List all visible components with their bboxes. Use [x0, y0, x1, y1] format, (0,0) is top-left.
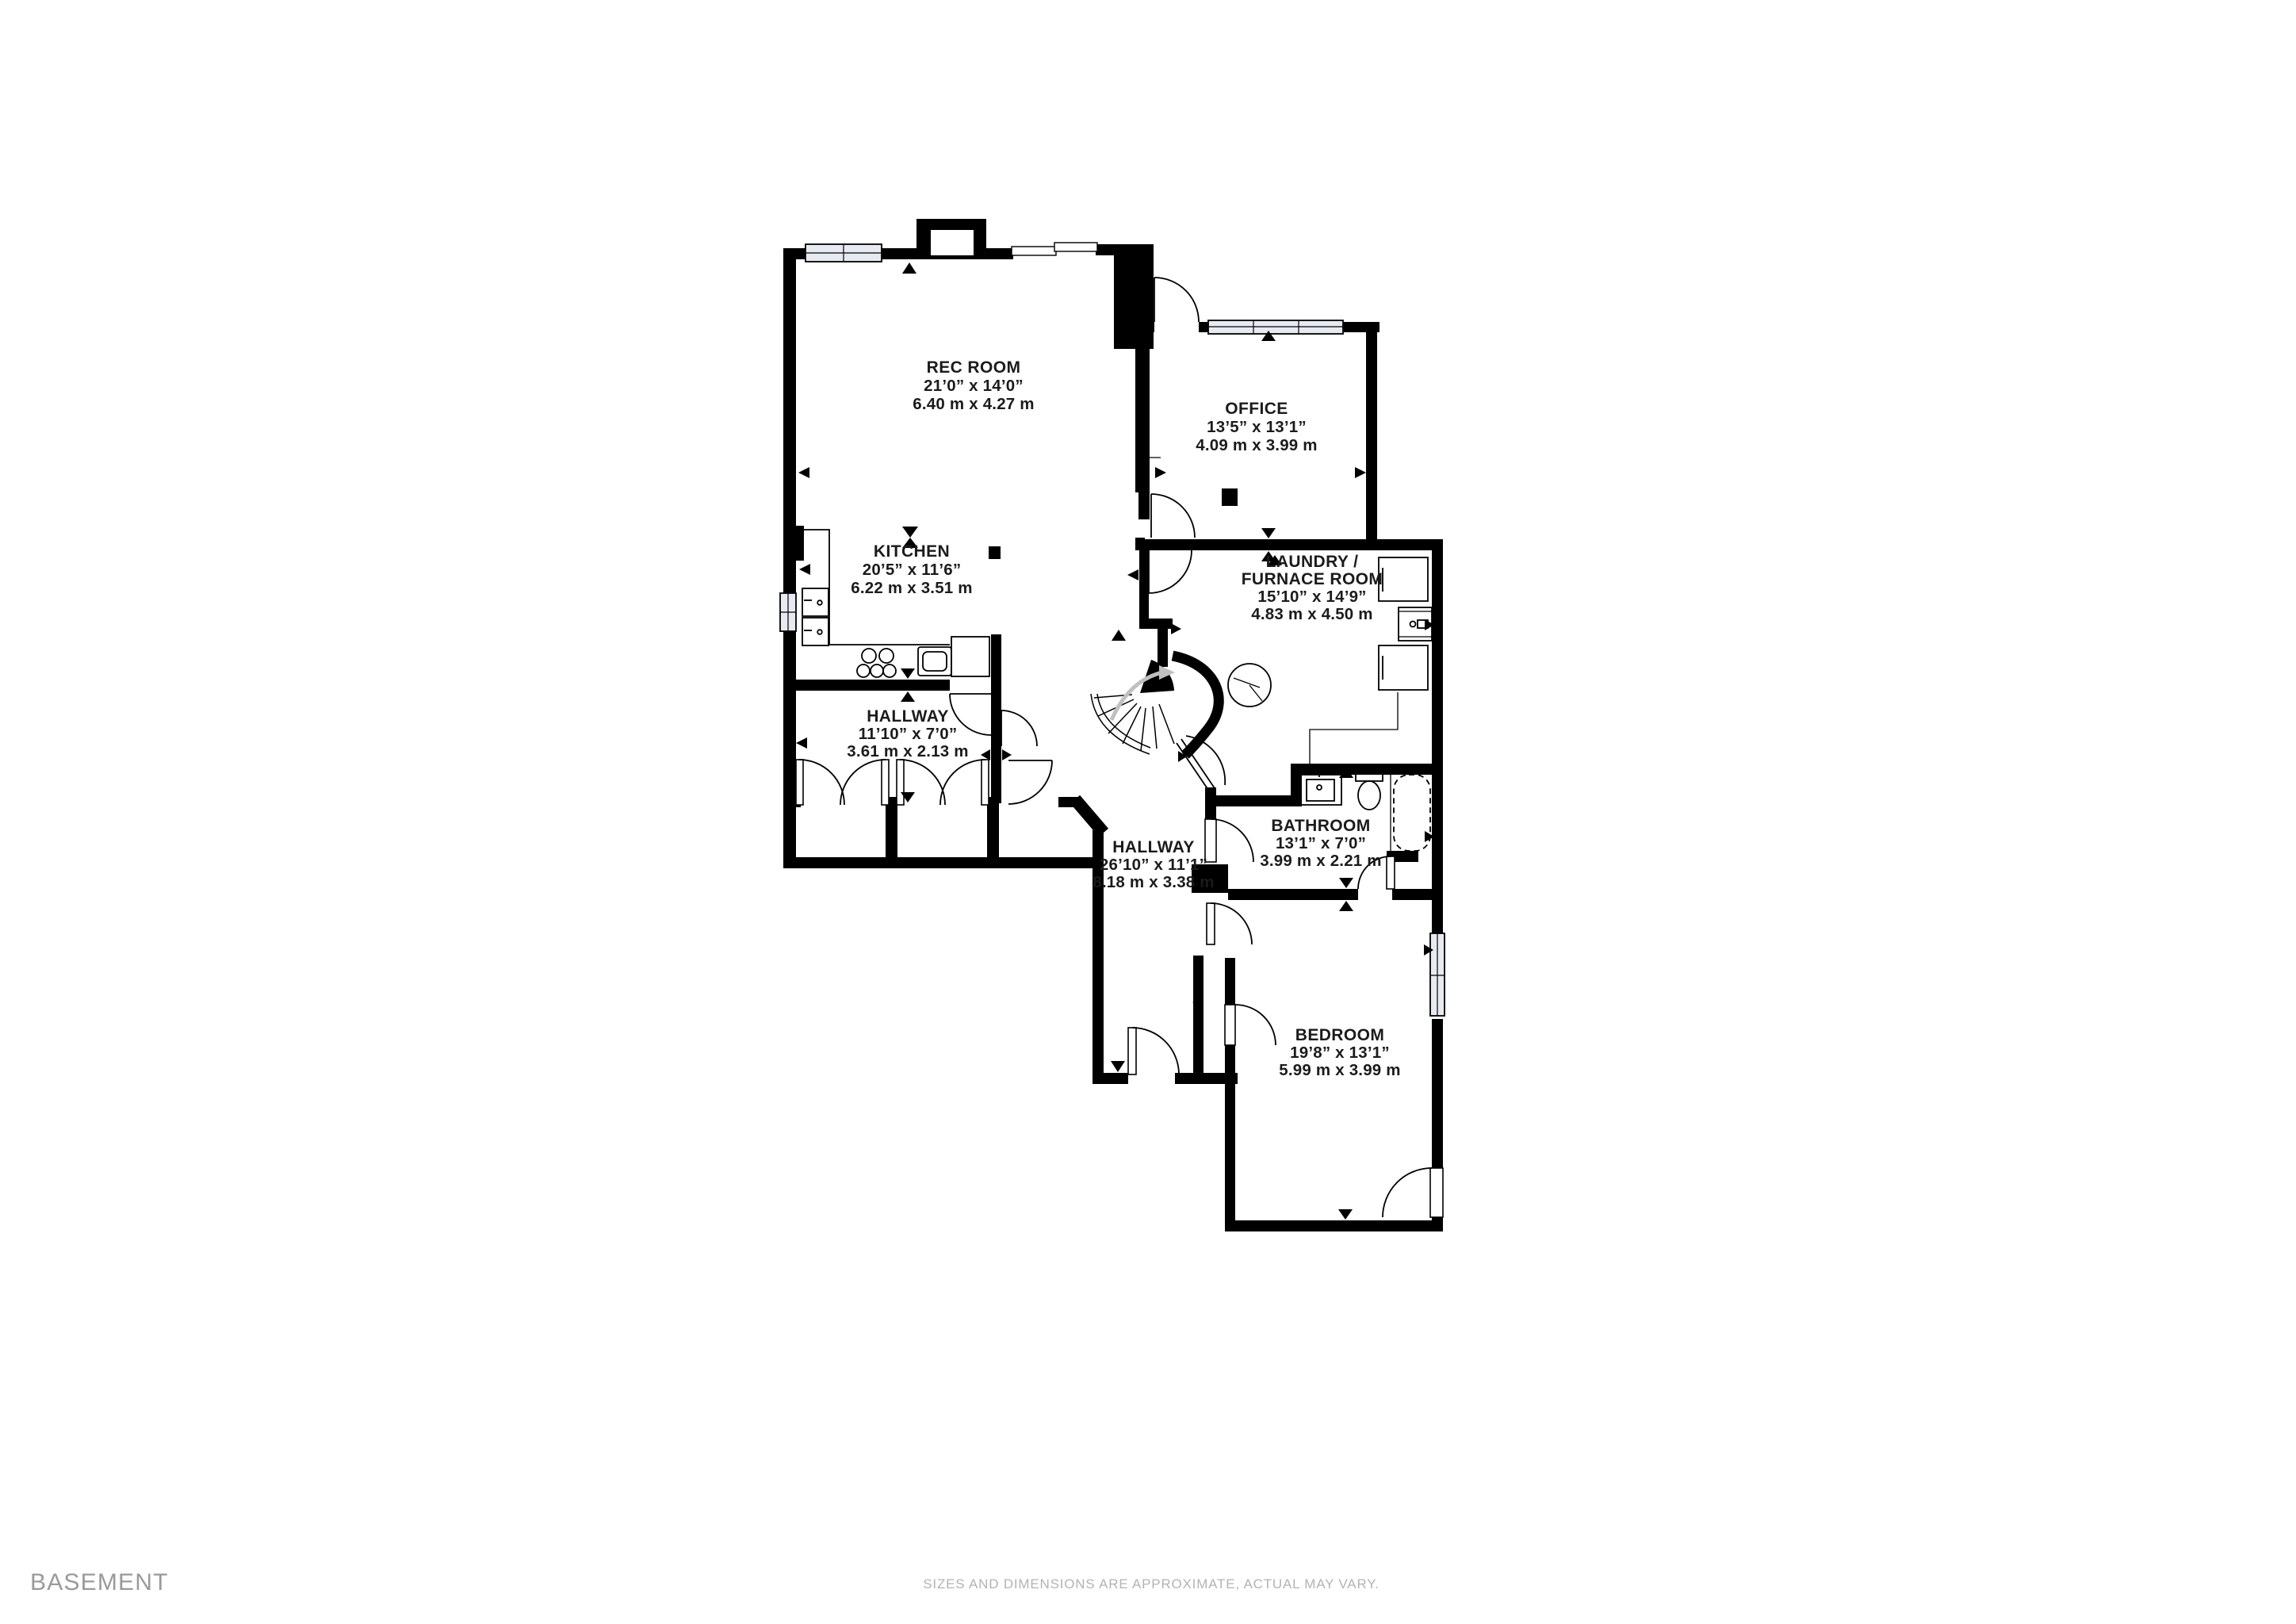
- disclaimer-text: SIZES AND DIMENSIONS ARE APPROXIMATE, AC…: [923, 1576, 1379, 1591]
- vestibule-door-icon: [1001, 710, 1037, 746]
- room-title: BATHROOM: [1271, 817, 1370, 835]
- room-title: KITCHEN: [874, 542, 950, 561]
- room-dim-metric: 4.09 m x 3.99 m: [1196, 436, 1317, 454]
- room-dim-metric: 6.22 m x 3.51 m: [851, 579, 972, 597]
- room-dim-metric: 6.40 m x 4.27 m: [913, 395, 1034, 413]
- room-title: BEDROOM: [1295, 1026, 1384, 1044]
- room-title: HALLWAY: [1112, 838, 1195, 856]
- dimension-arrow-icon: [1339, 901, 1353, 911]
- room-title: LAUNDRY /: [1266, 553, 1359, 571]
- dimension-arrow-icon: [798, 467, 809, 478]
- room-labels: REC ROOM 21’0” x 14’0” 6.40 m x 4.27 m O…: [847, 358, 1400, 1079]
- room-title: FURNACE ROOM: [1242, 570, 1383, 588]
- label-bathroom: BATHROOM 13’1” x 7’0” 3.99 m x 2.21 m: [1260, 817, 1381, 870]
- staircase: [1091, 656, 1219, 792]
- office-entry-door-icon: [1154, 278, 1199, 322]
- dimension-arrow-icon: [799, 564, 810, 575]
- floor-plan-page: REC ROOM 21’0” x 14’0” 6.40 m x 4.27 m O…: [0, 0, 2296, 1624]
- ceiling-light-icon: [1222, 488, 1238, 506]
- bedroom-left-door-icon: [1225, 1005, 1276, 1045]
- dimension-arrow-icon: [1171, 623, 1181, 634]
- dimension-arrow-icon: [1261, 528, 1276, 538]
- dimension-arrow-icon: [1112, 630, 1126, 641]
- rec-room-opening-icon: [1012, 243, 1097, 255]
- laundry-door-icon: [1149, 550, 1192, 593]
- room-title: HALLWAY: [867, 707, 949, 726]
- kitchen-island-counter: [951, 637, 989, 676]
- room-dim-metric: 3.99 m x 2.21 m: [1260, 852, 1381, 870]
- room-dim-metric: 3.61 m x 2.13 m: [847, 742, 968, 760]
- label-hallway-lower: HALLWAY 26’10” x 11’1” 8.18 m x 3.38 m: [1093, 838, 1214, 891]
- dimension-arrow-icon: [1127, 569, 1138, 580]
- dimension-arrow-icon: [1111, 1061, 1125, 1072]
- floor-title: BASEMENT: [30, 1569, 169, 1595]
- kitchen-stove-icon: [857, 649, 896, 677]
- room-title: OFFICE: [1225, 400, 1288, 418]
- office-side-door-icon: [1151, 494, 1195, 538]
- lower-hallway-door-icon: [1128, 1028, 1179, 1074]
- corridor-bedroom-door-icon: [1207, 903, 1252, 944]
- closet-single-door-icon: [1008, 760, 1052, 804]
- dimension-arrow-icon: [902, 262, 916, 274]
- label-bedroom: BEDROOM 19’8” x 13’1” 5.99 m x 3.99 m: [1279, 1026, 1400, 1079]
- room-dim-metric: 8.18 m x 3.38 m: [1093, 873, 1214, 891]
- label-kitchen: KITCHEN 20’5” x 11’6” 6.22 m x 3.51 m: [851, 542, 972, 597]
- furnace-icon: [1228, 664, 1271, 707]
- label-rec-room: REC ROOM 21’0” x 14’0” 6.40 m x 4.27 m: [913, 358, 1034, 413]
- dimension-arrow-icon: [901, 691, 915, 702]
- bathroom-hall-door-icon: [1205, 819, 1253, 862]
- kitchen-fridge-icon: [802, 588, 828, 645]
- room-dim-metric: 4.83 m x 4.50 m: [1251, 605, 1372, 623]
- label-hallway-upper: HALLWAY 11’10” x 7’0” 3.61 m x 2.13 m: [847, 707, 968, 760]
- kitchen-window-icon: [780, 593, 796, 631]
- dimension-arrow-icon: [981, 749, 990, 760]
- bathroom-sink-icon: [1300, 769, 1341, 805]
- room-dim-imperial: 26’10” x 11’1”: [1100, 856, 1207, 874]
- kitchen-sink-icon: [918, 647, 951, 676]
- dimension-arrow-icon: [1339, 878, 1353, 888]
- room-title: REC ROOM: [927, 358, 1021, 377]
- room-dim-metric: 5.99 m x 3.99 m: [1279, 1061, 1400, 1079]
- dimension-arrow-icon: [1355, 467, 1366, 478]
- bedroom-window-icon: [1430, 933, 1445, 1016]
- label-laundry: LAUNDRY / FURNACE ROOM 15’10” x 14’9” 4.…: [1242, 553, 1383, 623]
- furnace-platform: [1310, 692, 1398, 764]
- rec-room-window-icon: [806, 244, 882, 262]
- bedroom-exterior-door-icon: [1383, 1168, 1443, 1217]
- room-dim-imperial: 13’1” x 7’0”: [1276, 834, 1366, 852]
- floor-plan-drawing: REC ROOM 21’0” x 14’0” 6.40 m x 4.27 m O…: [0, 0, 2296, 1624]
- dimension-arrow-icon: [1155, 467, 1166, 478]
- dryer-icon: [1379, 645, 1428, 690]
- dimension-arrow-icon: [901, 668, 915, 679]
- washer-icon: [1379, 557, 1428, 601]
- office-window-icon: [1208, 320, 1343, 334]
- room-dim-imperial: 15’10” x 14’9”: [1257, 588, 1366, 606]
- room-dim-imperial: 11’10” x 7’0”: [859, 725, 958, 743]
- label-office: OFFICE 13’5” x 13’1” 4.09 m x 3.99 m: [1196, 400, 1317, 454]
- dimension-arrow-icon: [1338, 1209, 1353, 1220]
- closet-double-door-icon: [796, 760, 889, 805]
- ceiling-light-icon: [989, 546, 1001, 559]
- room-dim-imperial: 20’5” x 11’6”: [863, 561, 962, 579]
- room-dim-imperial: 19’8” x 13’1”: [1290, 1044, 1390, 1062]
- room-dim-imperial: 13’5” x 13’1”: [1207, 418, 1307, 436]
- room-dim-imperial: 21’0” x 14’0”: [924, 377, 1024, 395]
- dimension-arrow-icon: [796, 737, 807, 749]
- dimension-arrow-icon: [1002, 749, 1012, 760]
